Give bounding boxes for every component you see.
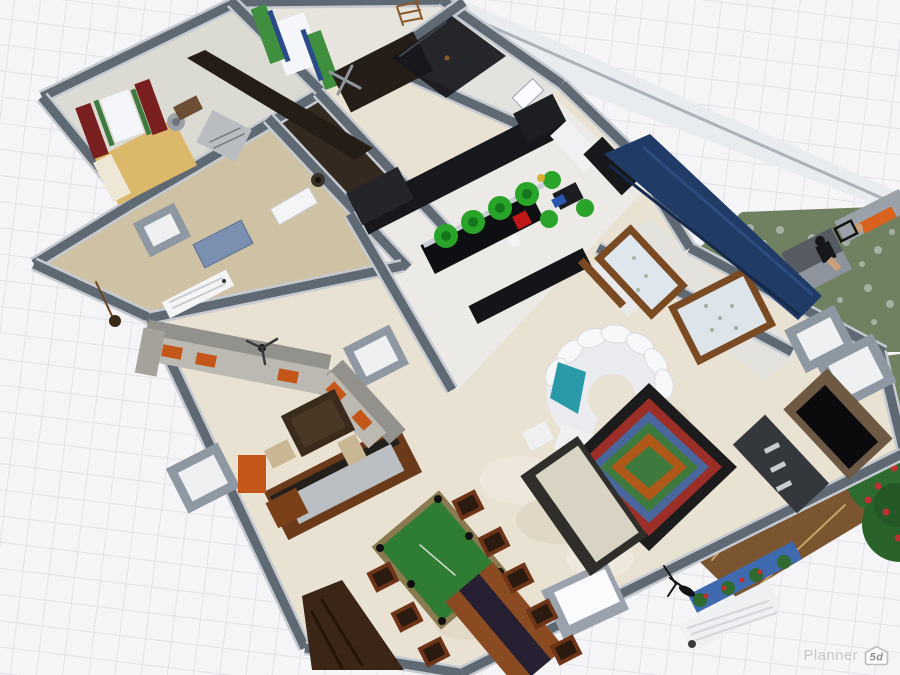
patio-stone [864, 284, 872, 292]
watermark: Planner 5d [803, 645, 890, 666]
tree-fruit [875, 483, 882, 490]
sectional-arm [135, 327, 165, 376]
nook-chair-green [543, 171, 561, 189]
patio-stone [837, 297, 843, 303]
planner5d-3d-view: Planner 5d [0, 0, 900, 675]
watermark-brand: Planner [803, 647, 858, 664]
flower-red [740, 578, 745, 583]
pool-pocket [376, 544, 384, 552]
floorplan-3d-viewport[interactable] [0, 0, 900, 675]
music-stand [668, 584, 676, 596]
pool-pocket [434, 495, 442, 503]
patio-stone [874, 246, 882, 254]
nook-chair-green [576, 199, 594, 217]
pendant-lamp-core [468, 217, 478, 227]
flower-red [722, 586, 727, 591]
kitchen-item-yellow [537, 174, 545, 182]
wall-top-edge [237, 0, 455, 2]
patio-stone [859, 261, 865, 267]
flower-bush [777, 555, 791, 569]
patio-stone [886, 300, 894, 308]
pool-pocket [465, 532, 473, 540]
glass-pebble [632, 256, 636, 260]
tree-fruit [883, 509, 890, 516]
pendant-lamp-core [522, 189, 532, 199]
glass-pebble [734, 326, 738, 330]
watermark-badge-text: 5d [870, 652, 884, 664]
radiator-knob [688, 640, 696, 648]
shower-handle [445, 56, 450, 61]
flower-red [758, 570, 763, 575]
patio-stone [871, 319, 877, 325]
pool-pocket [407, 580, 415, 588]
pool-pocket [438, 617, 446, 625]
flower-red [704, 594, 709, 599]
glass-pebble [718, 316, 722, 320]
chaise-orange [238, 455, 266, 493]
guitar-body [109, 315, 121, 327]
planner5d-logo-icon: 5d [863, 645, 890, 666]
glass-pebble [704, 304, 708, 308]
patio-stone [889, 229, 895, 235]
tree-fruit [865, 497, 872, 504]
patio-stone [776, 226, 784, 234]
glass-pebble [636, 288, 640, 292]
pendant-lamp-core [495, 203, 505, 213]
pendant-lamp-core [441, 231, 451, 241]
glass-pebble [730, 304, 734, 308]
ac-led [222, 279, 226, 283]
kitchen-item-white [508, 235, 520, 247]
glass-pebble [710, 328, 714, 332]
glass-pebble [644, 274, 648, 278]
stool-green [540, 210, 558, 228]
office-chair-seat [172, 118, 180, 126]
hall-pendant-bulb [315, 177, 321, 183]
